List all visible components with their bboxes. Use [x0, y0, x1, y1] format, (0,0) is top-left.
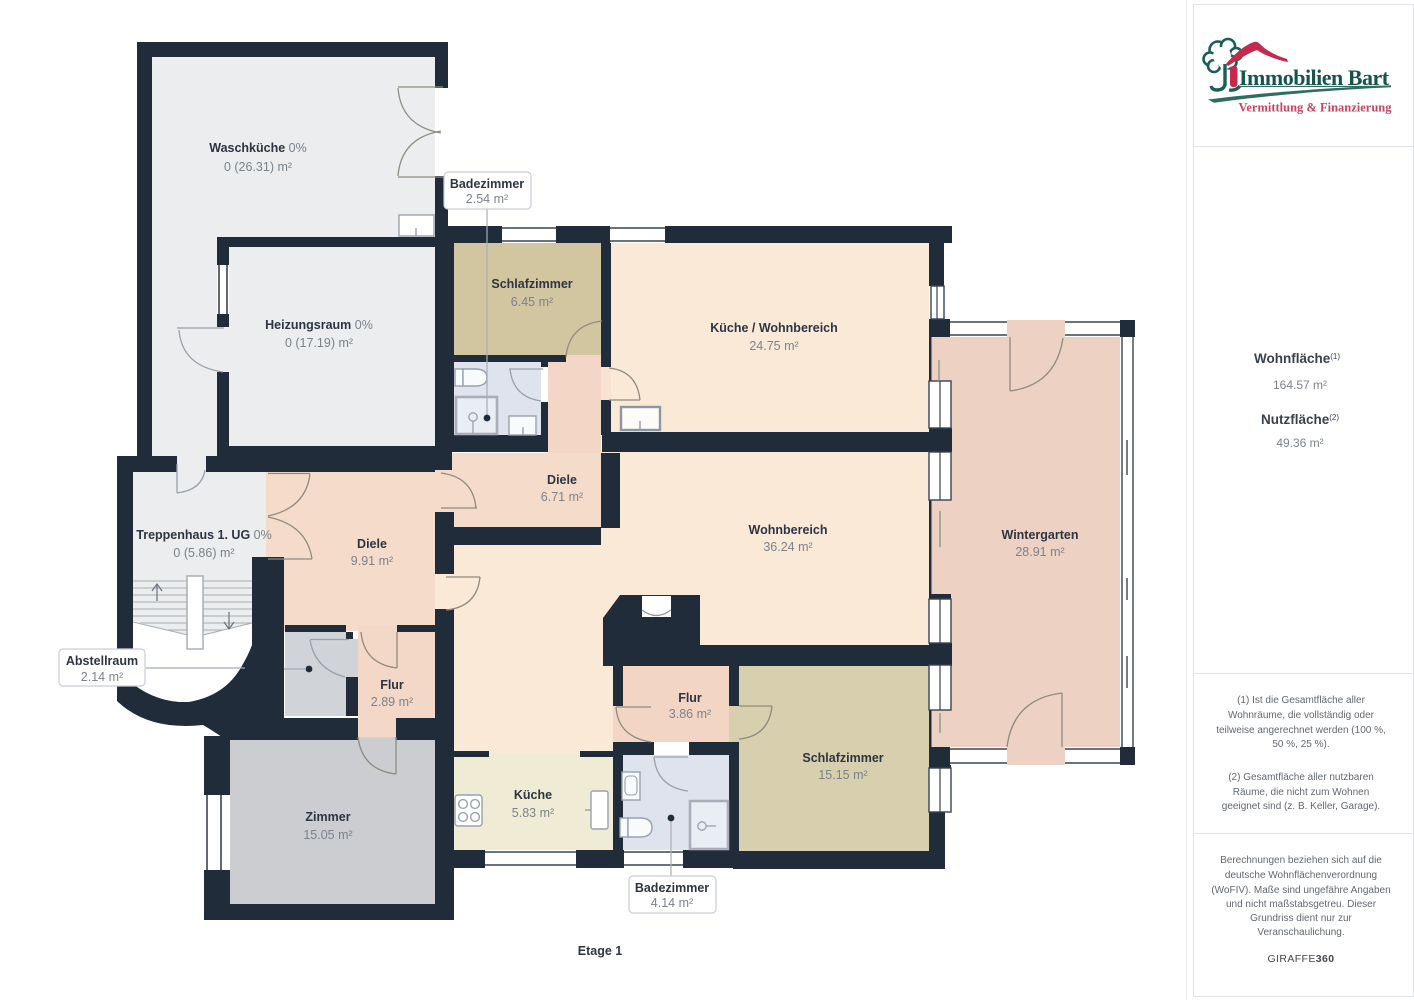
svg-text:Küche / Wohnbereich: Küche / Wohnbereich	[710, 321, 838, 335]
svg-text:Flur: Flur	[678, 691, 702, 705]
svg-text:deutsche Wohnflächenverordnung: deutsche Wohnflächenverordnung	[1225, 870, 1377, 881]
svg-text:Schlafzimmer: Schlafzimmer	[802, 751, 883, 765]
svg-text:Etage 1: Etage 1	[578, 944, 623, 958]
svg-text:15.05 m²: 15.05 m²	[303, 828, 352, 842]
svg-text:15.15 m²: 15.15 m²	[818, 768, 867, 782]
svg-text:Wohnräume, die vollständig ode: Wohnräume, die vollständig oder	[1228, 710, 1375, 721]
svg-text:0 (17.19) m²: 0 (17.19) m²	[285, 336, 353, 350]
svg-text:Wintergarten: Wintergarten	[1002, 528, 1079, 542]
svg-text:Wohnfläche(1): Wohnfläche(1)	[1254, 351, 1340, 366]
svg-text:4.14 m²: 4.14 m²	[651, 896, 693, 910]
svg-text:6.71 m²: 6.71 m²	[541, 490, 583, 504]
svg-text:Badezimmer: Badezimmer	[450, 177, 524, 191]
svg-text:(1) Ist die Gesamtfläche aller: (1) Ist die Gesamtfläche aller	[1237, 695, 1365, 706]
svg-text:Heizungsraum 0%: Heizungsraum 0%	[265, 318, 373, 332]
svg-text:(WoFIV). Maße sind ungefähre A: (WoFIV). Maße sind ungefähre Angaben	[1211, 885, 1390, 896]
svg-text:24.75 m²: 24.75 m²	[749, 339, 798, 353]
svg-text:9.91 m²: 9.91 m²	[351, 554, 393, 568]
svg-text:Waschküche 0%: Waschküche 0%	[209, 141, 307, 155]
svg-text:teilweise angerechnet werden (: teilweise angerechnet werden (100 %,	[1216, 725, 1386, 736]
svg-text:Berechnungen beziehen sich auf: Berechnungen beziehen sich auf die	[1220, 855, 1382, 866]
svg-text:Badezimmer: Badezimmer	[635, 881, 709, 895]
svg-text:(2) Gesamtfläche aller nutzbar: (2) Gesamtfläche aller nutzbaren	[1228, 772, 1374, 783]
svg-text:49.36 m²: 49.36 m²	[1276, 436, 1323, 450]
svg-text:und nicht maßstabsgetreu. Dies: und nicht maßstabsgetreu. Dieser	[1226, 899, 1377, 910]
svg-text:50 %, 25 %).: 50 %, 25 %).	[1272, 739, 1329, 750]
svg-text:Räume, die nicht zum Wohnen: Räume, die nicht zum Wohnen	[1233, 787, 1370, 798]
svg-text:Zimmer: Zimmer	[305, 810, 350, 824]
svg-text:Wohnbereich: Wohnbereich	[749, 523, 828, 537]
svg-text:164.57 m²: 164.57 m²	[1273, 378, 1327, 392]
svg-text:3.86 m²: 3.86 m²	[669, 707, 711, 721]
svg-text:2.14 m²: 2.14 m²	[81, 670, 123, 684]
svg-text:Küche: Küche	[514, 788, 552, 802]
svg-text:Schlafzimmer: Schlafzimmer	[491, 277, 572, 291]
svg-text:Vermittlung & Finanzierung: Vermittlung & Finanzierung	[1238, 101, 1392, 115]
svg-text:Veranschaulichung.: Veranschaulichung.	[1257, 927, 1344, 938]
svg-text:36.24 m²: 36.24 m²	[763, 540, 812, 554]
svg-text:Grundriss dient nur zur: Grundriss dient nur zur	[1250, 913, 1352, 924]
svg-text:geeignet sind (z. B. Keller, G: geeignet sind (z. B. Keller, Garage).	[1222, 801, 1380, 812]
svg-text:0 (26.31) m²: 0 (26.31) m²	[224, 160, 292, 174]
svg-text:2.89 m²: 2.89 m²	[371, 695, 413, 709]
svg-text:Flur: Flur	[380, 678, 404, 692]
svg-text:Treppenhaus 1. UG 0%: Treppenhaus 1. UG 0%	[136, 528, 271, 542]
svg-text:0 (5.86) m²: 0 (5.86) m²	[173, 546, 234, 560]
svg-text:Diele: Diele	[547, 473, 577, 487]
svg-text:5.83 m²: 5.83 m²	[512, 806, 554, 820]
svg-text:2.54 m²: 2.54 m²	[466, 192, 508, 206]
svg-text:Nutzfläche(2): Nutzfläche(2)	[1261, 412, 1339, 427]
svg-text:Abstellraum: Abstellraum	[66, 654, 138, 668]
svg-text:Diele: Diele	[357, 537, 387, 551]
svg-text:GIRAFFE360: GIRAFFE360	[1267, 953, 1334, 965]
svg-text:28.91 m²: 28.91 m²	[1015, 545, 1064, 559]
svg-text:6.45 m²: 6.45 m²	[511, 295, 553, 309]
